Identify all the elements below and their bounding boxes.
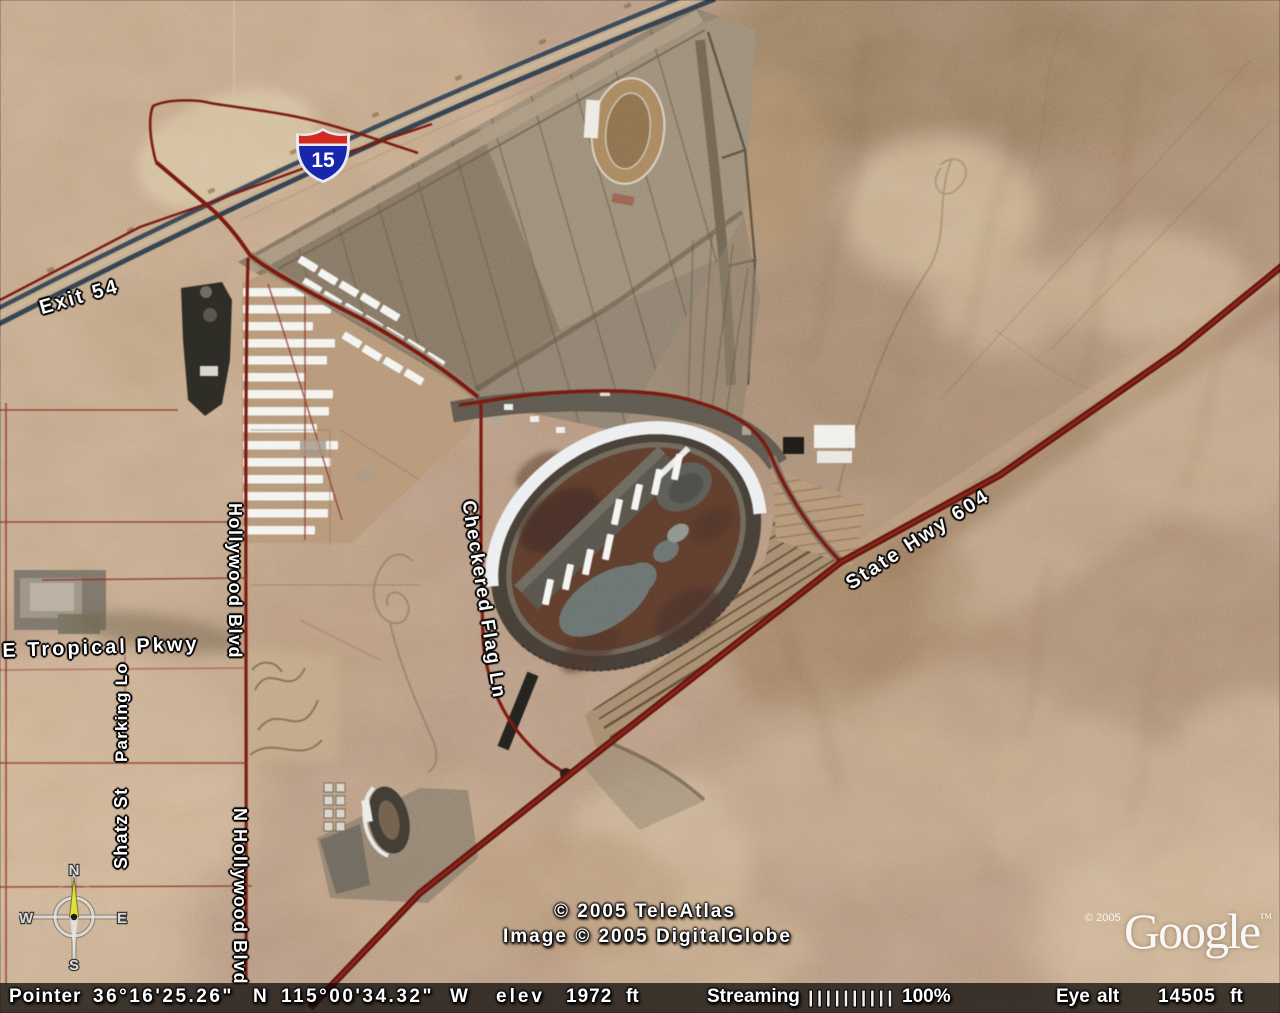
svg-text:S: S — [69, 957, 79, 972]
svg-text:E: E — [117, 910, 127, 927]
svg-text:15: 15 — [311, 149, 335, 172]
svg-text:W: W — [19, 910, 34, 927]
svg-text:N: N — [69, 862, 80, 879]
